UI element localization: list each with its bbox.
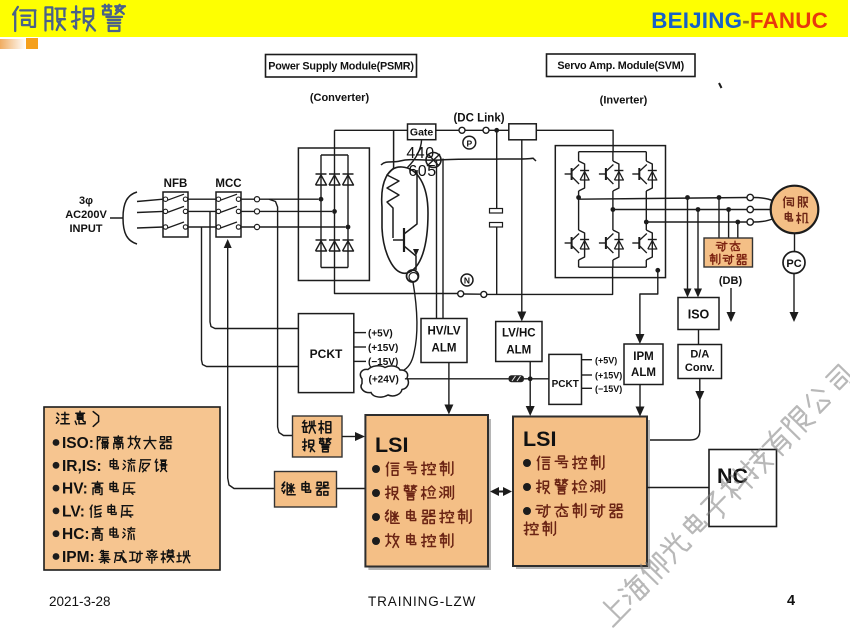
svg-text:IR,IS:: IR,IS: <box>62 458 102 475</box>
svg-text:(Inverter): (Inverter) <box>600 95 648 107</box>
svg-text:(−15V): (−15V) <box>595 384 622 394</box>
svg-text:(DC Link): (DC Link) <box>453 113 504 125</box>
svg-text:LSI: LSI <box>523 427 556 451</box>
svg-text:(+15V): (+15V) <box>595 371 622 381</box>
svg-text:Power Supply Module(PSMR): Power Supply Module(PSMR) <box>268 61 414 73</box>
svg-text:ALM: ALM <box>432 343 457 355</box>
svg-text:Gate: Gate <box>410 127 434 139</box>
svg-text:ISO: ISO <box>688 308 710 322</box>
svg-text:LV/HC: LV/HC <box>502 328 536 340</box>
svg-text:HC:: HC: <box>62 526 90 543</box>
svg-text:(+5V): (+5V) <box>595 355 617 365</box>
svg-text:(Converter): (Converter) <box>310 92 370 104</box>
svg-text:(+5V): (+5V) <box>368 328 393 339</box>
svg-text:P: P <box>466 138 472 148</box>
svg-text:LV:: LV: <box>62 503 85 520</box>
svg-text:ISO:: ISO: <box>62 435 94 452</box>
svg-text:LSI: LSI <box>375 433 408 457</box>
svg-text:Conv.: Conv. <box>685 362 715 374</box>
svg-text:IPM:: IPM: <box>62 549 95 566</box>
svg-text:605: 605 <box>408 163 436 180</box>
svg-text:MCC: MCC <box>215 178 241 190</box>
svg-text:HV/LV: HV/LV <box>427 326 460 338</box>
svg-text:AC200V: AC200V <box>65 209 107 221</box>
svg-text:PCKT: PCKT <box>552 379 579 390</box>
svg-text:INPUT: INPUT <box>70 223 103 235</box>
svg-text:NFB: NFB <box>164 178 188 190</box>
svg-text:ALM: ALM <box>506 345 531 357</box>
svg-text:PCKT: PCKT <box>310 347 343 361</box>
svg-text:3φ: 3φ <box>79 195 93 207</box>
svg-text:(+24V): (+24V) <box>369 374 399 385</box>
svg-text:Servo Amp. Module(SVM): Servo Amp. Module(SVM) <box>557 60 684 72</box>
svg-text:HV:: HV: <box>62 481 88 498</box>
svg-text:ALM: ALM <box>631 367 656 379</box>
svg-text:IPM: IPM <box>633 351 653 363</box>
svg-text:N: N <box>464 276 470 286</box>
svg-text:(DB): (DB) <box>719 275 743 287</box>
svg-text:D/A: D/A <box>690 349 709 361</box>
svg-text:(+15V): (+15V) <box>368 343 398 354</box>
svg-text:PC: PC <box>786 258 801 270</box>
